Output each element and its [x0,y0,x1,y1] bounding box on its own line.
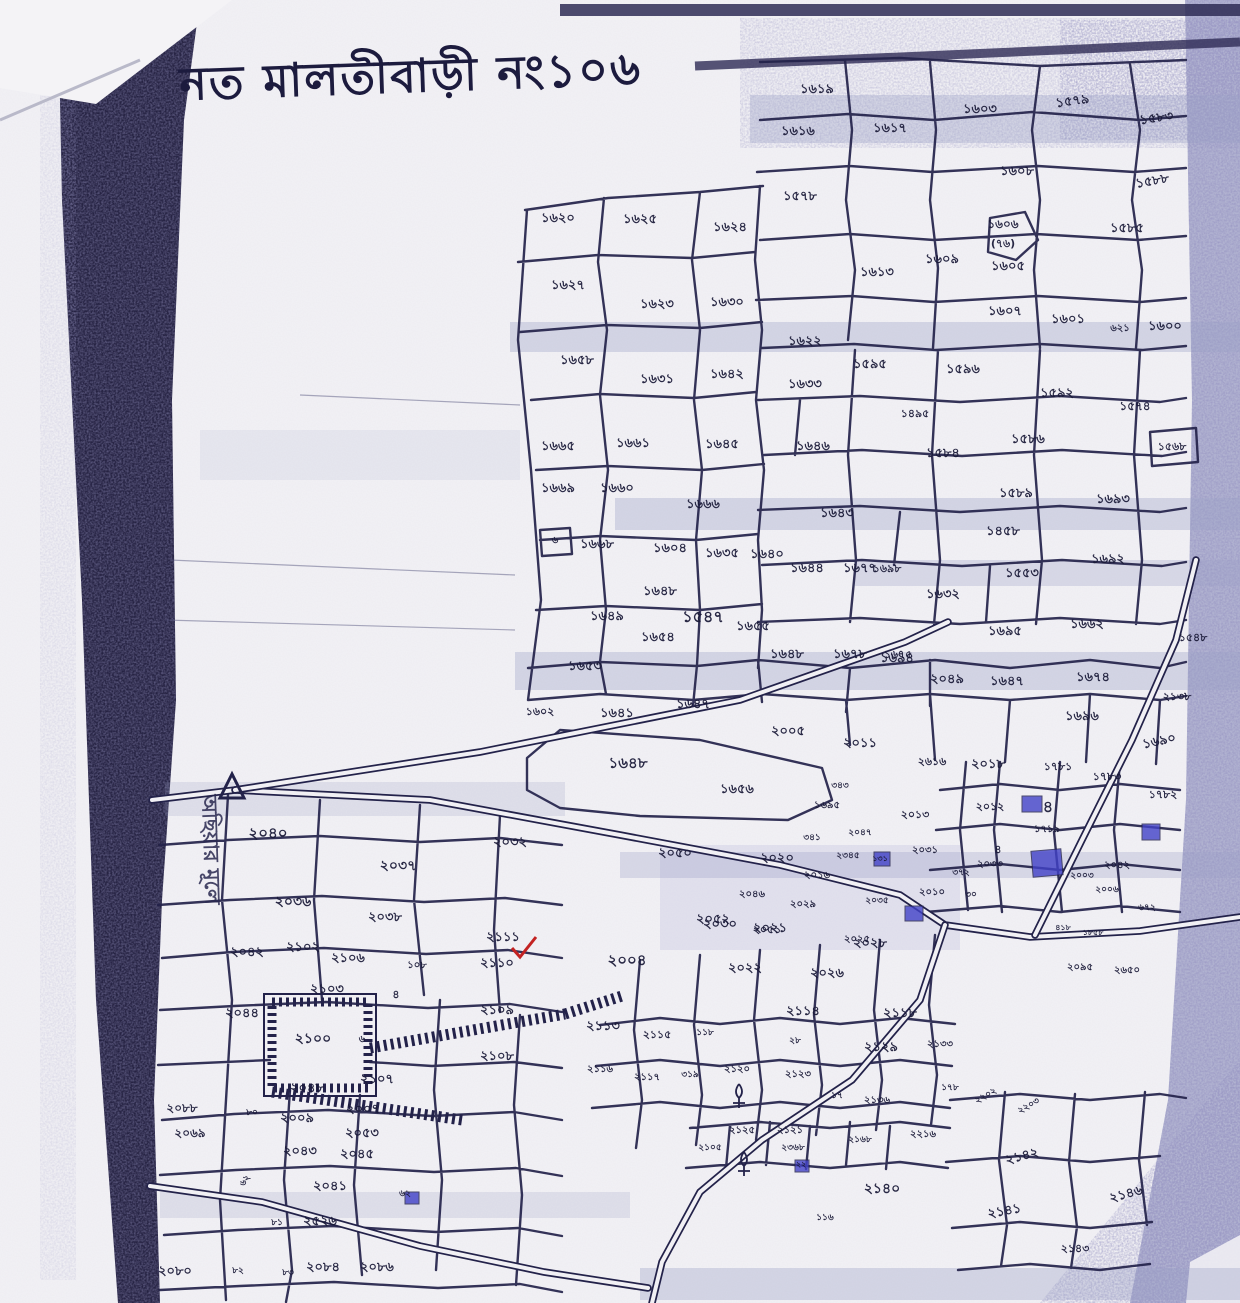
plot-number-label: ১৬৪৪ [790,561,824,576]
plot-number-label: ১৬৯৫ [988,624,1022,639]
plot-number-label: ১৬৬২ [1070,617,1104,632]
plot-number-label: ১৬৩২ [926,587,960,602]
plot-number-label: ২১৩৮ [1163,690,1192,703]
plot-number-label: ৮০ [245,1108,258,1118]
plot-number-label: ২০২৬ [810,966,844,981]
plot-number-label: ৩৭২ [952,868,970,878]
plot-number-label: ২০৪৮ [290,1081,324,1096]
plot-number-label: ২০০৭ [346,1102,380,1117]
plot-number-label: ১৬১৯ [800,82,834,97]
plot-number-label: ২০১২ [976,800,1005,813]
plot-number-label: ২১১৮ [883,1006,917,1021]
plot-number-label: ২১১১ [486,930,520,945]
plot-number-label: ২১৩৩ [927,1039,953,1050]
plot-number-label: ২০১৩ [901,808,930,821]
plot-number-label: ২০৪২ [230,945,264,960]
plot-number-label: ১৬৫৮ [560,353,594,368]
plot-number-label: ১৫৯৬ [946,362,980,377]
plot-number-label: ১৬২৫ [623,212,657,227]
plot-number-label: ২১৪০ [864,1181,900,1197]
plot-number-label: ১৬৭৮ [833,647,867,662]
plot-number-label: ২১০৩ [310,982,344,997]
plot-number-label: ২০১১ [843,736,877,751]
plot-number-label: ১৭ [831,1091,843,1101]
plot-number-label: ৩৪৩ [831,781,849,791]
plot-number-label: ৪১৮ [1055,923,1071,932]
plot-number-label: ১৬০২ [526,705,555,718]
plot-number-label: ১৬৬৬ [686,497,720,512]
plot-number-label: ২০৪৭ [848,828,872,838]
plot-number-label: ২১২৩ [785,1069,811,1080]
plot-number-label: ২০০৯ [280,1111,314,1126]
plot-number-label: ১৬২৪ [713,220,747,235]
plot-number-label: ২১৬৮ [848,1135,872,1145]
plot-number-label: ৬ [359,1034,366,1045]
plot-number-label: ২১২০ [724,1064,750,1075]
plot-number-label: ১৬৪৩ [820,506,854,521]
plot-number-label: ১৬২৭ [551,278,585,293]
plot-number-label: ১৬৬৫ [541,439,575,454]
plot-number-label: ১৬০৯ [925,252,959,267]
plot-number-label: ২০৪৪ [225,1006,259,1021]
plot-number-label: ২২১৬ [910,1129,936,1140]
plot-number-label: ১৬৪২ [710,367,744,382]
plot-number-label: ২৮ [789,1036,801,1046]
plot-number-label: ১৫৯৫ [853,357,887,372]
plot-number-label: ২১১৬ [587,1064,613,1075]
plot-number-label: ২০১৮ [971,757,1005,772]
plot-number-label: ২০৬৯ [174,1126,205,1140]
plot-number-label: ১০৮ [407,960,427,971]
plot-number-label: ৬৭২ [1138,903,1156,913]
plot-number-label: ৬২১ [1110,323,1130,334]
plot-number-label: ২০২০ [760,851,794,866]
plot-number-label: ২০৩৩ [977,859,1004,870]
plot-number-label: ২০৮৬ [360,1260,394,1275]
plot-number-label: ৪ [392,988,399,1001]
plot-number-label: ২০৩৫ [865,896,889,906]
plot-number-label: ১৬৫৫ [736,619,770,634]
plot-number-label: ২০৯৫ [1067,962,1093,973]
plot-number-label: ১৫৮৬ [1011,432,1045,447]
plot-number-label: ২০০৬ [1095,885,1119,895]
plot-number-label: ২০৮৪ [306,1260,340,1275]
plot-number-label: (৭৬) [991,237,1015,250]
plot-number-label: ১৭৮২ [1149,788,1178,801]
plot-number-label: ২১১৭ [634,1072,660,1083]
plot-number-label: ১৬১৩ [860,265,894,280]
plot-number-label: ১৬৪৭ [676,697,710,712]
plot-number-label: ৮২ [231,1266,244,1276]
plot-number-label: ২২ [796,1160,806,1169]
map-canvas: নত মালতীবাড়ী নং১০৬ অছিয়ার মূলে ১৬২০১৬২… [0,0,1240,1303]
plot-number-label: ২১০৭ [360,1072,394,1087]
plot-number-label: ১৬৩১ [640,372,674,387]
plot-number-label: ২০৩২ [493,835,527,850]
scanned-mouza-map-sheet: নত মালতীবাড়ী নং১০৬ অছিয়ার মূলে ১৬২০১৬২… [0,0,1240,1303]
plot-number-label: ২৬৫০ [1114,965,1140,976]
plot-number-label: ২৩৬৮ [781,1143,805,1153]
plot-number-label: ১৬৬৮ [580,537,614,552]
plot-number-label: ২০৪০ [249,824,288,842]
plot-number-label: ১৬৫৩ [568,659,602,674]
plot-number-label: ৪ [994,843,1001,856]
plot-number-label: ১৬৬১ [616,436,650,451]
plot-number-label: ২০৩০ [703,917,737,932]
plot-number-label: ১৬০৬ [987,217,1018,231]
plot-number-label: ২৩৪৫ [836,851,860,861]
plot-number-label: ১৬৯৪ [880,651,914,666]
plot-number-label: ১৬৯২ [1091,552,1125,567]
plot-number-label: ১৫৪৭ [682,607,724,626]
plot-number-label: ২০৮৮ [166,1101,197,1115]
plot-number-label: ১৬০৪ [653,541,687,556]
plot-number-label: ১৬৪৮ [770,647,804,662]
plot-number-label: ২০৩১ [912,845,938,856]
plot-number-label: ১৬৪১ [600,706,634,721]
plot-number-label: ১৬৪৮ [609,754,648,772]
plot-number-label: ১৬০৮ [1000,164,1034,179]
plot-number-label: ১৫৫৩ [1005,566,1039,581]
plot-number-label: ২৬১৬ [918,755,947,768]
plot-number-label: ২০১৬ [804,870,830,881]
plot-number-label: ১৬৯৫ [814,800,840,811]
plot-number-label: ২০৩৬ [275,894,311,910]
plot-number-label: ৩০ [965,890,977,900]
plot-number-label: ২১১৩ [586,1019,620,1034]
plot-number-label: ৮৩ [281,1268,294,1278]
plot-number-label: ২০১০ [919,887,945,898]
plot-number-label: ২১০০ [295,1031,331,1047]
plot-number-label: ১৭১৯ [1034,824,1060,835]
plot-number-label: ৪ [1043,797,1053,816]
plot-number-label: ১৬৯৩ [1096,492,1130,507]
plot-number-label: ২১০৯ [480,1003,514,1018]
plot-number-label: ১৬৪৯ [590,609,624,624]
plot-number-label: ১৬০৫ [991,259,1025,274]
plot-number-label: ১৬৬০ [600,481,634,496]
plot-number-label: ১৭৮৩ [1093,770,1122,783]
plot-number-label: ১৬৪৮ [643,584,677,599]
plot-number-label: ৮১ [270,1218,283,1228]
plot-number-label: ২০৪৩ [283,1144,317,1159]
plot-number-label: ১৭৮১ [1044,760,1073,773]
plot-number-label: ১৬৯৮ [873,562,902,575]
plot-number-label: ১৬৭৪ [1076,670,1110,685]
plot-number-label: ২০২২ [728,961,762,976]
plot-number-label: ২০০৩ [1070,871,1094,881]
plot-number-label: ১৬৬৯ [541,481,575,496]
plot-number-label: ১৬১৭ [873,121,907,136]
plot-number-label: ১৬২৩ [640,297,674,312]
plot-number-label: ২০৮০ [158,1264,192,1279]
plot-number-label: ২৫২৬ [303,1214,337,1229]
plot-number-label: ২০২৮ [853,936,887,951]
plot-number-label: ২১২৯ [864,1040,898,1055]
plot-number-label: ১৬০৭ [988,304,1022,319]
plot-number-label: ৩১৯ [681,1070,699,1080]
plot-number-label: ২০৫০ [658,846,692,861]
plot-number-label: ১৬৩৫ [705,546,739,561]
plot-number-label: ২০৪৯ [930,672,964,687]
plot-number-label: ১৫৭৮ [783,189,817,204]
plot-number-label: ১৪৫৮ [986,524,1020,539]
plot-number-label: ১৬৩০ [710,295,744,310]
plot-number-label: ২০২১ [753,921,787,936]
plot-number-label: ৬ [552,535,559,546]
plot-number-label: ১৬২০ [541,211,575,226]
plot-number-label: ২১৩৬ [864,1095,890,1106]
plot-number-label: ১৩১ [872,854,888,863]
plot-number-label: ২০০৪ [608,951,647,969]
plot-number-label: ১৫৮৫ [1110,221,1144,236]
plot-number-label: ২০০৫ [771,724,805,739]
plot-number-label: ২১১৫ [643,1028,672,1041]
plot-number-label: ১৬৪৫ [705,437,739,452]
plot-number-label: ১১৮ [696,1028,714,1038]
plot-number-label: ২০৩৭ [380,858,416,874]
plot-number-label: ১৬৪৬ [796,439,830,454]
plot-number-label: ১৬৫৬ [720,782,754,797]
plot-number-label: ২১০৬ [331,951,365,966]
plot-number-label: ১৬৪৭ [990,674,1024,689]
plot-number-label: ২০৪২ [1104,860,1130,871]
plot-number-label: ২১০২ [286,940,320,955]
plot-number-label: ২০২৯ [790,899,816,910]
plot-number-label: ১৬০৩ [963,102,997,117]
plot-number-label: ১৬৩৩ [788,377,822,392]
plot-number-label: ২১০৮ [480,1049,514,1064]
plot-number-label: ২১১০ [480,956,514,971]
plot-number-label: ১৫৯২ [1040,386,1074,401]
plot-number-label: ১৫৪৮ [1179,631,1208,644]
plot-number-label: ১৪৯৫ [901,407,930,420]
plot-number-label: ১৬৫৪ [641,630,675,645]
plot-number-label: ১৫৭৪ [1119,399,1150,413]
plot-number-label: ১৬১৬ [781,124,815,139]
plot-number-label: ১৮৫৮ [1083,928,1105,937]
plot-number-label: ১৬২২ [788,334,822,349]
plot-number-label: ১৭৮ [941,1083,959,1093]
plot-number-label: ১৬৯৬ [1065,709,1099,724]
plot-number-label: ১১৬ [816,1213,834,1223]
plot-number-label: ২০৪৬ [739,889,765,900]
plot-number-label: ১৬০১ [1051,312,1085,327]
plot-number-label: ১৬০০ [1148,319,1182,334]
plot-number-label: ২০৪১ [313,1179,347,1194]
plot-number-label: ১৬৪০ [750,547,784,562]
plot-number-label: ২০৫৩ [345,1126,379,1141]
plot-number-label: ২১২৫ [729,1125,755,1136]
plot-number-label: ২০৪৫ [340,1147,374,1162]
plot-number-label: ২০৩৮ [368,910,402,925]
plot-number-label: ১৫৬৮ [1158,440,1187,453]
plot-number-label: ২১২১ [777,1125,803,1136]
plot-number-label: ১৫৮৪ [926,446,960,461]
plot-number-label: ২১০৫ [698,1143,722,1153]
plot-number-label: ২১১৪ [786,1004,820,1019]
plot-number-label: ৬২ [399,1189,411,1199]
plot-number-label: ১৫৮৯ [999,486,1033,501]
plot-number-label: ৩৪১ [803,833,821,843]
plot-number-label: ২১৪৩ [1061,1242,1090,1255]
